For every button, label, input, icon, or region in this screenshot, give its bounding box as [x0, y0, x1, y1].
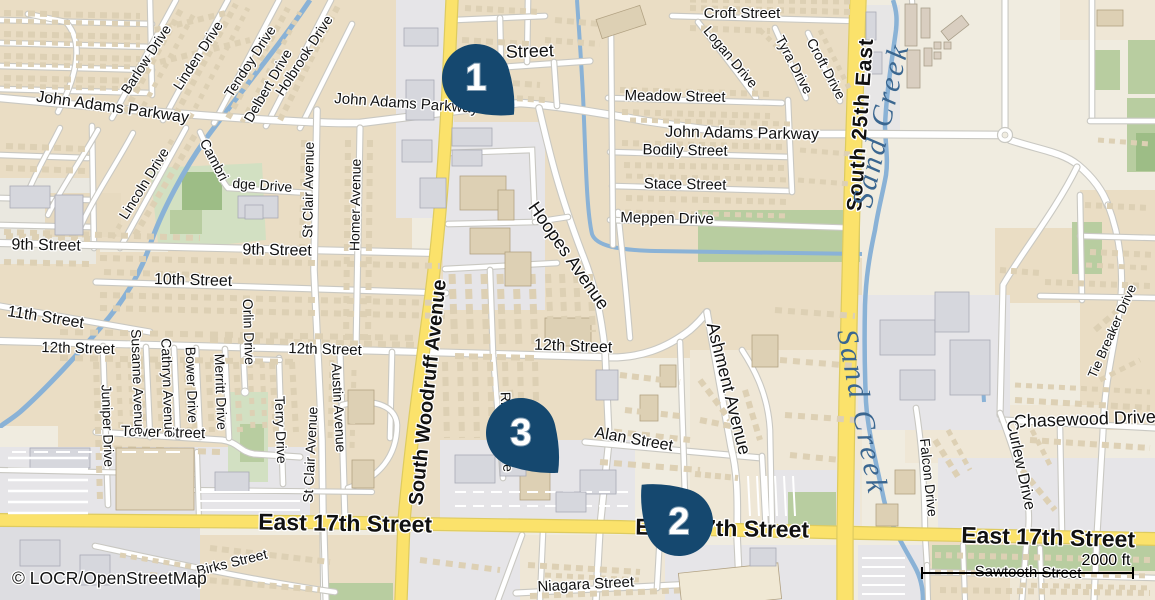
- svg-text:12th Street: 12th Street: [288, 340, 363, 359]
- svg-text:2000 ft: 2000 ft: [1082, 552, 1131, 569]
- svg-text:9th Street: 9th Street: [11, 236, 81, 254]
- svg-text:Terry Drive: Terry Drive: [272, 396, 290, 464]
- svg-text:© LOCR/OpenStreetMap: © LOCR/OpenStreetMap: [12, 568, 207, 588]
- svg-text:Stace Street: Stace Street: [644, 175, 728, 193]
- svg-text:3: 3: [510, 412, 531, 454]
- svg-text:Juniper Drive: Juniper Drive: [99, 384, 118, 467]
- svg-text:Bower Drive: Bower Drive: [183, 346, 202, 423]
- svg-text:2: 2: [668, 501, 689, 543]
- svg-text:Orlin Drive: Orlin Drive: [240, 299, 258, 366]
- svg-text:Meppen Drive: Meppen Drive: [620, 209, 714, 228]
- svg-text:East 17th Street: East 17th Street: [258, 508, 433, 537]
- svg-text:9th Street: 9th Street: [242, 241, 312, 259]
- svg-text:John Adams Parkway: John Adams Parkway: [665, 124, 819, 144]
- svg-text:1: 1: [465, 57, 486, 99]
- svg-text:East 17th Street: East 17th Street: [961, 522, 1136, 553]
- svg-text:St Clair Avenue: St Clair Avenue: [299, 141, 317, 238]
- svg-text:Bodily Street: Bodily Street: [642, 141, 728, 159]
- svg-text:Homer Avenue: Homer Avenue: [346, 158, 364, 251]
- svg-text:12th Street: 12th Street: [534, 337, 613, 357]
- svg-text:Croft Street: Croft Street: [704, 5, 782, 22]
- svg-text:Street: Street: [505, 40, 554, 62]
- svg-text:Merritt Drive: Merritt Drive: [212, 353, 231, 430]
- svg-text:12th Street: 12th Street: [41, 339, 116, 358]
- svg-text:10th Street: 10th Street: [154, 271, 233, 290]
- svg-text:Meadow Street: Meadow Street: [624, 87, 726, 106]
